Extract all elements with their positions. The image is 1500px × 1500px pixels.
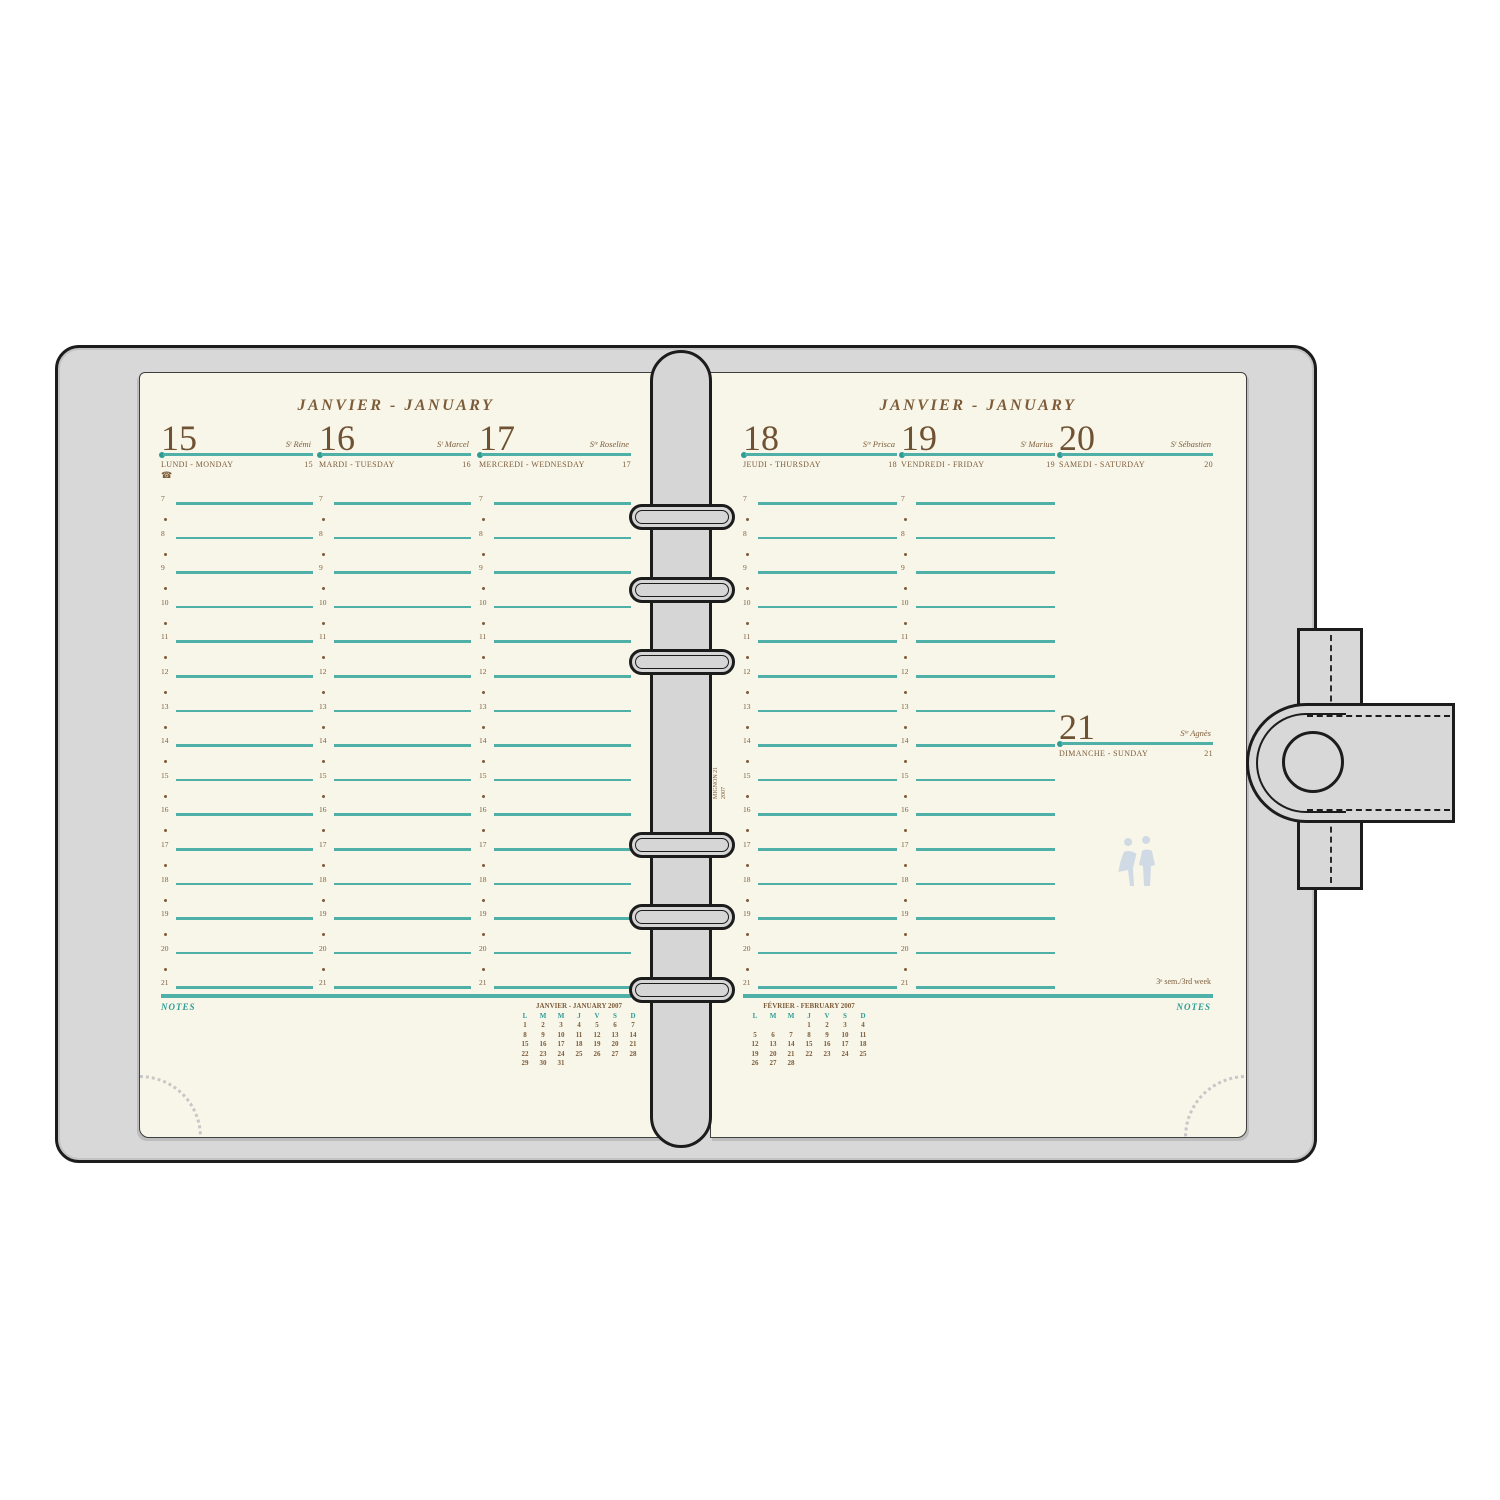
hour-label: 17 (901, 841, 913, 849)
calendar-day: 24 (836, 1050, 854, 1060)
hour-line (334, 606, 471, 609)
hour-label: 10 (161, 599, 173, 607)
hour-label: 16 (319, 806, 331, 814)
calendar-day: 19 (746, 1050, 764, 1060)
calendar-day: 18 (570, 1040, 588, 1050)
hour-label: 14 (743, 737, 755, 745)
calendar-day: 31 (552, 1059, 570, 1069)
hour-label: 11 (479, 633, 491, 641)
half-hour-dot (904, 553, 907, 556)
hour-line (758, 640, 897, 643)
hour-line (758, 744, 897, 747)
mini-calendar-title: FÉVRIER - FEBRUARY 2007 (746, 1002, 872, 1012)
weekday-header: D (854, 1012, 872, 1022)
hour-line (176, 848, 313, 851)
hour-line (334, 848, 471, 851)
hour-label: 19 (743, 910, 755, 918)
half-hour-dot (164, 726, 167, 729)
hour-line (176, 986, 313, 989)
hour-label: 12 (479, 668, 491, 676)
hour-line (916, 917, 1055, 920)
hour-label: 10 (743, 599, 755, 607)
hour-label: 12 (319, 668, 331, 676)
day-name-row: DIMANCHE - SUNDAY21 (1059, 749, 1213, 758)
calendar-day: 12 (746, 1040, 764, 1050)
calendar-day (764, 1021, 782, 1031)
hour-line (334, 883, 471, 886)
hour-line (334, 986, 471, 989)
half-hour-dot (322, 795, 325, 798)
hour-label: 19 (319, 910, 331, 918)
day-name: JEUDI - THURSDAY (743, 460, 821, 469)
weekday-header: L (516, 1012, 534, 1022)
weekday-header: M (782, 1012, 800, 1022)
mini-calendar: FÉVRIER - FEBRUARY 2007LMMJVSD1234567891… (746, 1002, 872, 1069)
day-name-row: MARDI - TUESDAY16 (319, 460, 471, 469)
hour-label: 13 (743, 703, 755, 711)
day-number: 16 (319, 423, 355, 453)
half-hour-dot (904, 726, 907, 729)
binder-ring (629, 649, 735, 675)
hour-label: 20 (319, 945, 331, 953)
calendar-day: 20 (764, 1050, 782, 1060)
calendar-day: 10 (836, 1031, 854, 1041)
calendar-day: 13 (606, 1031, 624, 1041)
weekday-header: M (764, 1012, 782, 1022)
calendar-day: 24 (552, 1050, 570, 1060)
half-hour-dot (482, 691, 485, 694)
hour-label: 15 (479, 772, 491, 780)
half-hour-dot (746, 795, 749, 798)
calendar-day: 27 (606, 1050, 624, 1060)
calendar-day (800, 1059, 818, 1069)
calendar-day: 6 (606, 1021, 624, 1031)
hour-label: 15 (161, 772, 173, 780)
saint-name: Sᵗᵉ Roseline (590, 439, 629, 449)
hour-label: 17 (319, 841, 331, 849)
half-hour-dot (322, 587, 325, 590)
hour-line (916, 848, 1055, 851)
hour-label: 15 (743, 772, 755, 780)
half-hour-dot (164, 829, 167, 832)
right-page: JANVIER - JANUARY 3ᵉ sem./3rd week NOTES… (710, 372, 1247, 1138)
day-number: 19 (901, 423, 937, 453)
half-hour-dot (164, 795, 167, 798)
hour-line (758, 848, 897, 851)
binder-ring (629, 832, 735, 858)
half-hour-dot (322, 760, 325, 763)
half-hour-dot (904, 691, 907, 694)
hour-label: 10 (319, 599, 331, 607)
half-hour-dot (164, 553, 167, 556)
hour-label: 16 (161, 806, 173, 814)
half-hour-dot (746, 899, 749, 902)
day-name: LUNDI - MONDAY (161, 460, 233, 469)
day-of-year: 17 (622, 460, 631, 469)
half-hour-dot (322, 656, 325, 659)
hour-label: 16 (743, 806, 755, 814)
calendar-day: 3 (552, 1021, 570, 1031)
half-hour-dot (746, 968, 749, 971)
binder-spine (650, 350, 712, 1148)
hour-label: 13 (479, 703, 491, 711)
day-name-row: JEUDI - THURSDAY18 (743, 460, 897, 469)
left-page: JANVIER - JANUARY NOTES 15Sᵗ RémiLUNDI -… (139, 372, 673, 1138)
hour-line (176, 537, 313, 540)
hour-line (176, 710, 313, 713)
half-hour-dot (482, 864, 485, 867)
day-of-year: 19 (1046, 460, 1055, 469)
hour-line (758, 606, 897, 609)
half-hour-dot (746, 864, 749, 867)
half-hour-dot (322, 864, 325, 867)
saint-name: Sᵗᵉ Prisca (863, 439, 895, 449)
binder-ring (629, 904, 735, 930)
half-hour-dot (164, 968, 167, 971)
hour-line (494, 883, 631, 886)
hour-line (758, 813, 897, 816)
mini-calendar: JANVIER - JANUARY 2007LMMJVSD12345678910… (516, 1002, 642, 1069)
calendar-day: 25 (570, 1050, 588, 1060)
hour-label: 11 (319, 633, 331, 641)
hour-line (334, 813, 471, 816)
hour-label: 20 (479, 945, 491, 953)
hour-line (758, 571, 897, 574)
hour-line (916, 779, 1055, 782)
half-hour-dot (904, 829, 907, 832)
calendar-day: 28 (782, 1059, 800, 1069)
calendar-day: 5 (746, 1031, 764, 1041)
hour-line (176, 675, 313, 678)
hour-line (334, 952, 471, 955)
half-hour-dot (322, 968, 325, 971)
half-hour-dot (482, 553, 485, 556)
calendar-day: 7 (782, 1031, 800, 1041)
calendar-day: 10 (552, 1031, 570, 1041)
calendar-day: 19 (588, 1040, 606, 1050)
hour-label: 8 (319, 530, 331, 538)
hour-line (758, 952, 897, 955)
calendar-day: 30 (534, 1059, 552, 1069)
hour-line (916, 744, 1055, 747)
weekday-header: J (570, 1012, 588, 1022)
day-rule (745, 453, 897, 456)
snap-stud (1282, 731, 1344, 793)
calendar-day: 27 (764, 1059, 782, 1069)
half-hour-dot (164, 933, 167, 936)
hour-label: 14 (161, 737, 173, 745)
calendar-day: 11 (854, 1031, 872, 1041)
hour-label: 19 (901, 910, 913, 918)
calendar-day: 1 (800, 1021, 818, 1031)
half-hour-dot (746, 760, 749, 763)
half-hour-dot (904, 656, 907, 659)
hour-line (916, 986, 1055, 989)
hour-line (758, 710, 897, 713)
spine-reference-text: MIGNON 21 2007 (713, 739, 728, 799)
calendar-day (782, 1021, 800, 1031)
day-rule (903, 453, 1055, 456)
half-hour-dot (322, 622, 325, 625)
hour-label: 11 (901, 633, 913, 641)
calendar-day: 4 (854, 1021, 872, 1031)
half-hour-dot (482, 518, 485, 521)
saint-name: Sᵗ Rémi (286, 439, 311, 449)
day-name: VENDREDI - FRIDAY (901, 460, 984, 469)
half-hour-dot (482, 795, 485, 798)
calendar-day: 7 (624, 1021, 642, 1031)
half-hour-dot (746, 518, 749, 521)
half-hour-dot (904, 518, 907, 521)
hour-label: 20 (901, 945, 913, 953)
hour-label: 12 (901, 668, 913, 676)
phone-icon: ☎ (161, 471, 172, 480)
hour-line (334, 675, 471, 678)
hour-line (758, 917, 897, 920)
half-hour-dot (482, 899, 485, 902)
calendar-day (746, 1021, 764, 1031)
calendar-day: 29 (516, 1059, 534, 1069)
hour-line (494, 640, 631, 643)
calendar-day: 21 (782, 1050, 800, 1060)
hour-label: 20 (743, 945, 755, 953)
hour-line (176, 744, 313, 747)
calendar-day: 3 (836, 1021, 854, 1031)
calendar-day: 2 (818, 1021, 836, 1031)
weekday-header-row: LMMJVSD (516, 1012, 642, 1022)
hour-label: 8 (743, 530, 755, 538)
hour-label: 7 (743, 495, 755, 503)
calendar-day: 2 (534, 1021, 552, 1031)
hour-line (176, 917, 313, 920)
calendar-day: 15 (800, 1040, 818, 1050)
spine-text-line2: 2007 (721, 739, 728, 799)
hour-line (916, 502, 1055, 505)
hour-line (758, 883, 897, 886)
calendar-day (624, 1059, 642, 1069)
hour-line (916, 883, 1055, 886)
calendar-day: 14 (782, 1040, 800, 1050)
calendar-day: 25 (854, 1050, 872, 1060)
half-hour-dot (904, 587, 907, 590)
calendar-day: 23 (534, 1050, 552, 1060)
hour-line (176, 952, 313, 955)
half-hour-dot (322, 933, 325, 936)
organizer-product-illustration: JANVIER - JANUARY NOTES 15Sᵗ RémiLUNDI -… (0, 0, 1500, 1500)
hour-label: 7 (161, 495, 173, 503)
day-of-year: 16 (462, 460, 471, 469)
half-hour-dot (746, 691, 749, 694)
calendar-day (570, 1059, 588, 1069)
hour-line (758, 537, 897, 540)
half-hour-dot (322, 553, 325, 556)
day-number: 21 (1059, 712, 1095, 742)
calendar-day: 9 (818, 1031, 836, 1041)
hour-line (334, 744, 471, 747)
calendar-day: 22 (800, 1050, 818, 1060)
half-hour-dot (482, 587, 485, 590)
hour-label: 13 (319, 703, 331, 711)
calendar-day: 22 (516, 1050, 534, 1060)
hour-line (176, 640, 313, 643)
half-hour-dot (482, 968, 485, 971)
half-hour-dot (746, 933, 749, 936)
half-hour-dot (164, 899, 167, 902)
hour-line (494, 502, 631, 505)
hour-line (176, 779, 313, 782)
hour-line (494, 986, 631, 989)
mini-calendar-title: JANVIER - JANUARY 2007 (516, 1002, 642, 1012)
half-hour-dot (904, 899, 907, 902)
hour-label: 15 (319, 772, 331, 780)
hour-label: 18 (161, 876, 173, 884)
hour-label: 14 (319, 737, 331, 745)
calendar-day: 14 (624, 1031, 642, 1041)
hour-line (334, 917, 471, 920)
hour-label: 16 (479, 806, 491, 814)
calendar-day: 16 (818, 1040, 836, 1050)
weekday-header: V (818, 1012, 836, 1022)
hour-line (334, 710, 471, 713)
half-hour-dot (164, 760, 167, 763)
hour-label: 9 (161, 564, 173, 572)
hour-label: 21 (479, 979, 491, 987)
hour-label: 18 (743, 876, 755, 884)
calendar-day: 17 (836, 1040, 854, 1050)
day-column: 21Sᵗᵉ AgnèsDIMANCHE - SUNDAY21 (1059, 373, 1213, 1137)
weekday-header-row: LMMJVSD (746, 1012, 872, 1022)
calendar-day: 13 (764, 1040, 782, 1050)
calendar-day: 20 (606, 1040, 624, 1050)
hour-line (176, 813, 313, 816)
half-hour-dot (322, 829, 325, 832)
day-of-year: 15 (304, 460, 313, 469)
half-hour-dot (746, 829, 749, 832)
half-hour-dot (904, 760, 907, 763)
hour-line (334, 571, 471, 574)
day-of-year: 21 (1204, 749, 1213, 758)
half-hour-dot (482, 829, 485, 832)
hour-line (334, 502, 471, 505)
hour-label: 13 (161, 703, 173, 711)
hour-label: 7 (901, 495, 913, 503)
hour-label: 12 (161, 668, 173, 676)
calendar-day: 4 (570, 1021, 588, 1031)
hour-label: 16 (901, 806, 913, 814)
hour-line (758, 779, 897, 782)
day-name: MARDI - TUESDAY (319, 460, 395, 469)
hour-line (334, 537, 471, 540)
day-name: DIMANCHE - SUNDAY (1059, 749, 1148, 758)
hour-label: 10 (479, 599, 491, 607)
calendar-day: 9 (534, 1031, 552, 1041)
half-hour-dot (322, 899, 325, 902)
day-of-year: 18 (888, 460, 897, 469)
hour-line (494, 710, 631, 713)
weekday-header: S (836, 1012, 854, 1022)
hour-line (494, 744, 631, 747)
hour-label: 17 (161, 841, 173, 849)
hour-label: 21 (319, 979, 331, 987)
hour-label: 21 (743, 979, 755, 987)
weekday-header: M (552, 1012, 570, 1022)
weekday-header: S (606, 1012, 624, 1022)
half-hour-dot (164, 864, 167, 867)
day-name-row: LUNDI - MONDAY15 (161, 460, 313, 469)
hour-label: 20 (161, 945, 173, 953)
half-hour-dot (164, 518, 167, 521)
hour-line (494, 606, 631, 609)
calendar-day (588, 1059, 606, 1069)
hour-label: 8 (479, 530, 491, 538)
weekday-header: V (588, 1012, 606, 1022)
hour-label: 18 (901, 876, 913, 884)
half-hour-dot (746, 726, 749, 729)
half-hour-dot (322, 691, 325, 694)
half-hour-dot (322, 518, 325, 521)
hour-line (334, 640, 471, 643)
day-rule (481, 453, 631, 456)
hour-label: 14 (901, 737, 913, 745)
hour-line (916, 537, 1055, 540)
half-hour-dot (904, 795, 907, 798)
hour-line (916, 710, 1055, 713)
calendar-day: 21 (624, 1040, 642, 1050)
hour-line (916, 675, 1055, 678)
hour-line (916, 606, 1055, 609)
hour-label: 7 (479, 495, 491, 503)
half-hour-dot (164, 656, 167, 659)
day-rule (321, 453, 471, 456)
day-column: 16Sᵗ MarcelMARDI - TUESDAY16789101112131… (319, 373, 471, 1137)
half-hour-dot (482, 726, 485, 729)
hour-label: 8 (161, 530, 173, 538)
hour-label: 9 (479, 564, 491, 572)
half-hour-dot (746, 656, 749, 659)
half-hour-dot (904, 864, 907, 867)
hour-line (176, 502, 313, 505)
hour-label: 11 (161, 633, 173, 641)
calendar-day: 17 (552, 1040, 570, 1050)
hour-label: 12 (743, 668, 755, 676)
clasp-stitching (1307, 809, 1450, 811)
hour-line (494, 813, 631, 816)
hour-line (176, 606, 313, 609)
day-number: 18 (743, 423, 779, 453)
calendar-day: 26 (746, 1059, 764, 1069)
hour-label: 19 (479, 910, 491, 918)
calendar-day: 26 (588, 1050, 606, 1060)
hour-line (494, 952, 631, 955)
hour-label: 17 (743, 841, 755, 849)
hour-line (494, 848, 631, 851)
hour-line (494, 537, 631, 540)
hour-label: 11 (743, 633, 755, 641)
calendar-day (854, 1059, 872, 1069)
weekday-header: L (746, 1012, 764, 1022)
hour-line (494, 675, 631, 678)
calendar-day: 5 (588, 1021, 606, 1031)
hour-line (176, 571, 313, 574)
saint-name: Sᵗ Marcel (437, 439, 469, 449)
half-hour-dot (164, 691, 167, 694)
hour-line (758, 675, 897, 678)
half-hour-dot (322, 726, 325, 729)
weekday-header: M (534, 1012, 552, 1022)
calendar-day: 28 (624, 1050, 642, 1060)
half-hour-dot (904, 968, 907, 971)
half-hour-dot (746, 622, 749, 625)
